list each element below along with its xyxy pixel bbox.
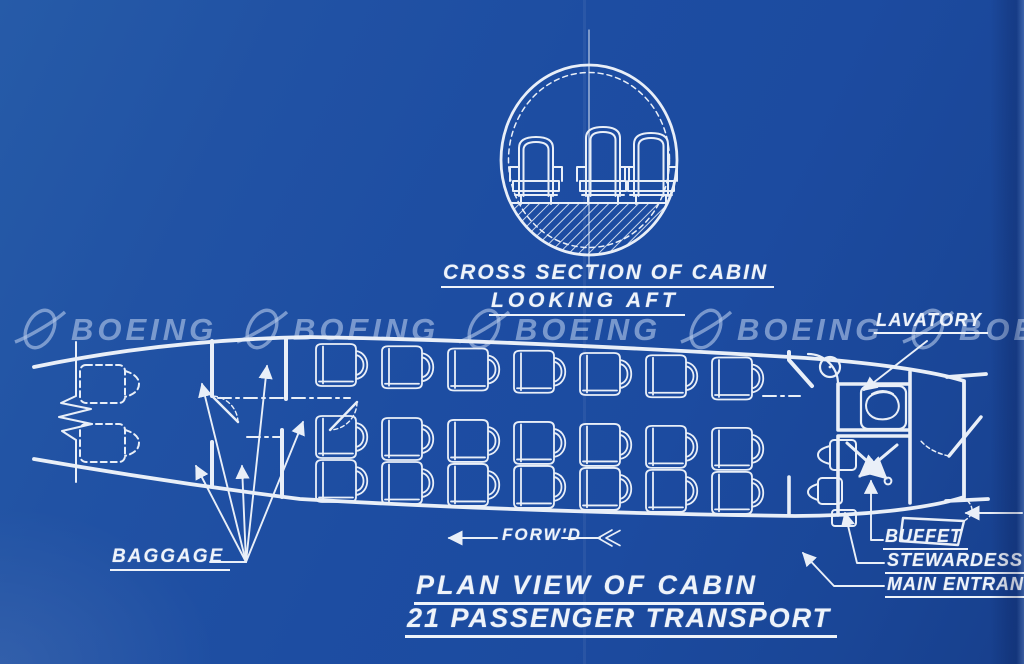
passenger-seat [448,464,499,506]
passenger-seat [646,470,697,512]
main-entrance-leader [803,553,884,586]
passenger-seat [712,357,763,399]
passenger-seat [316,460,367,502]
passenger-seats [316,344,763,514]
passenger-seat [448,348,499,390]
passenger-seat [580,353,631,395]
pilot-seats [80,365,139,462]
passenger-seat [382,418,433,460]
aft-partitions [789,352,910,515]
passenger-seat [448,420,499,462]
paper-edge-shadow [990,0,1024,664]
plan-title-line1: PLAN VIEW OF CABIN [414,572,764,605]
cross-section-seats [510,127,677,204]
paper-corner-sheen [0,504,220,664]
passenger-seat [514,466,565,508]
toilet [866,391,899,419]
cabin-floor-hatch [511,203,668,255]
passenger-seat [646,355,697,397]
passenger-seat [580,468,631,510]
passenger-seat [382,346,433,388]
passenger-seat [316,416,367,458]
buffet-fixtures [847,443,897,484]
passenger-seat [514,351,565,393]
passenger-seat [646,426,697,468]
leader-lines [196,341,927,586]
blueprint-page: BOEINGBOEINGBOEINGBOEINGBOEING [0,0,1024,664]
cross-section-caption-line1: CROSS SECTION OF CABIN [441,262,774,288]
passenger-seat [580,424,631,466]
plan-title-line2: 21 PASSENGER TRANSPORT [405,605,837,638]
label-forward: FORW'D [500,526,588,546]
cross-section-drawing [501,30,677,278]
cabin-seat-front-view [510,137,562,204]
paper-fold-highlight [583,0,586,664]
stewardess-seat [808,440,856,504]
fuselage-outline [34,337,988,516]
cross-section-caption-line2: LOOKING AFT [489,290,685,316]
passenger-seat [316,344,367,386]
passenger-seat [712,428,763,470]
arrow-feathers [598,530,620,546]
label-buffet: BUFFET [883,527,968,550]
passenger-seat [382,462,433,504]
label-lavatory: LAVATORY [874,311,988,334]
stewardess-leader [845,513,884,563]
passenger-seat [712,472,763,514]
passenger-seat [514,422,565,464]
